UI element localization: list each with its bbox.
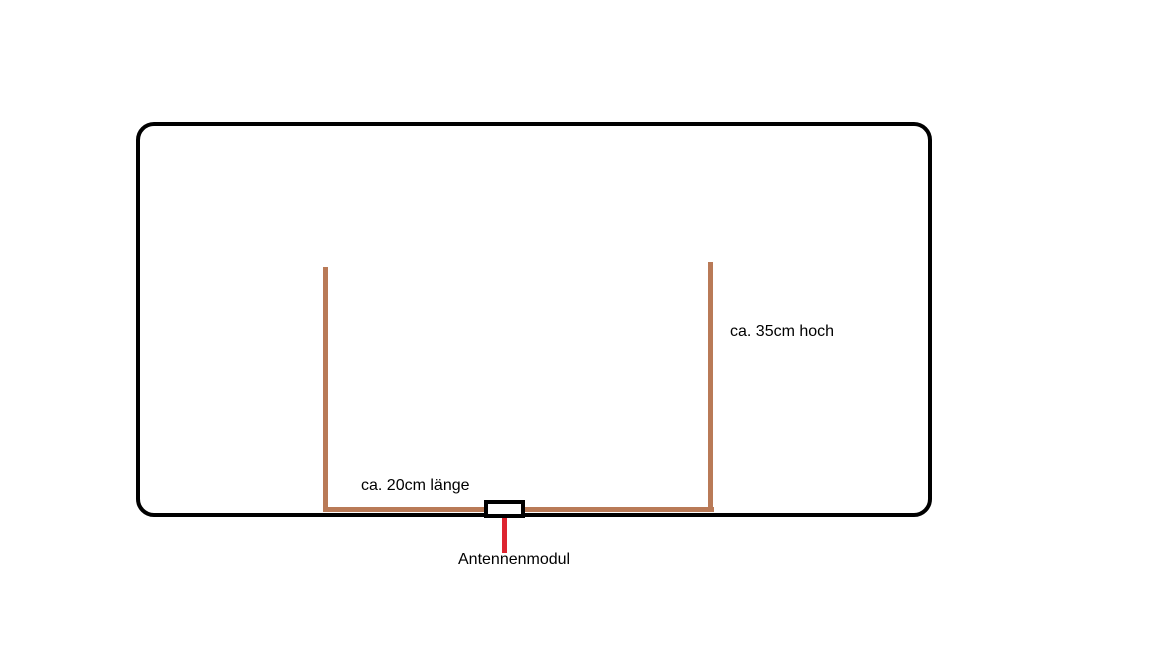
length-label: ca. 20cm länge <box>361 477 470 495</box>
antenna-module-box <box>484 500 525 518</box>
enclosure-outline <box>136 122 932 517</box>
antenna-wire-left <box>323 267 328 512</box>
height-label: ca. 35cm hoch <box>730 323 834 341</box>
module-pointer-line <box>502 514 507 553</box>
module-label: Antennenmodul <box>458 551 570 569</box>
antenna-wire-right <box>708 262 713 512</box>
drawing-canvas: ca. 35cm hoch ca. 20cm länge Antennenmod… <box>0 0 1152 648</box>
